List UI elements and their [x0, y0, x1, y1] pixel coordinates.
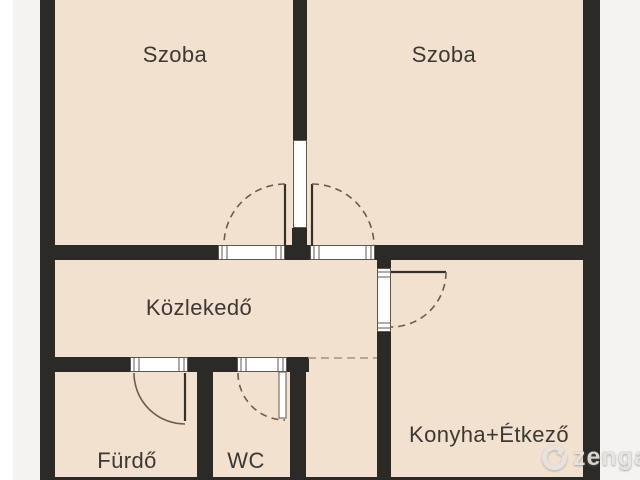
door-wc: [238, 372, 286, 420]
room-label-szoba-right: Szoba: [412, 42, 476, 68]
room-label-wc: WC: [227, 448, 264, 474]
room-label-kozlekedo: Közlekedő: [146, 295, 252, 321]
door-szoba-right: [312, 184, 374, 246]
door-kitchen: [391, 272, 446, 327]
room-label-szoba-left: Szoba: [143, 42, 207, 68]
door-swing-overlay: [0, 0, 640, 480]
door-szoba-left: [224, 184, 285, 246]
floorplan-canvas: Szoba Szoba Közlekedő Fürdő WC Konyha+Ét…: [0, 0, 640, 480]
door-bathroom: [134, 373, 185, 424]
room-label-furdo: Fürdő: [97, 448, 156, 474]
room-label-konyha-etkezo: Konyha+Étkező: [409, 422, 569, 448]
